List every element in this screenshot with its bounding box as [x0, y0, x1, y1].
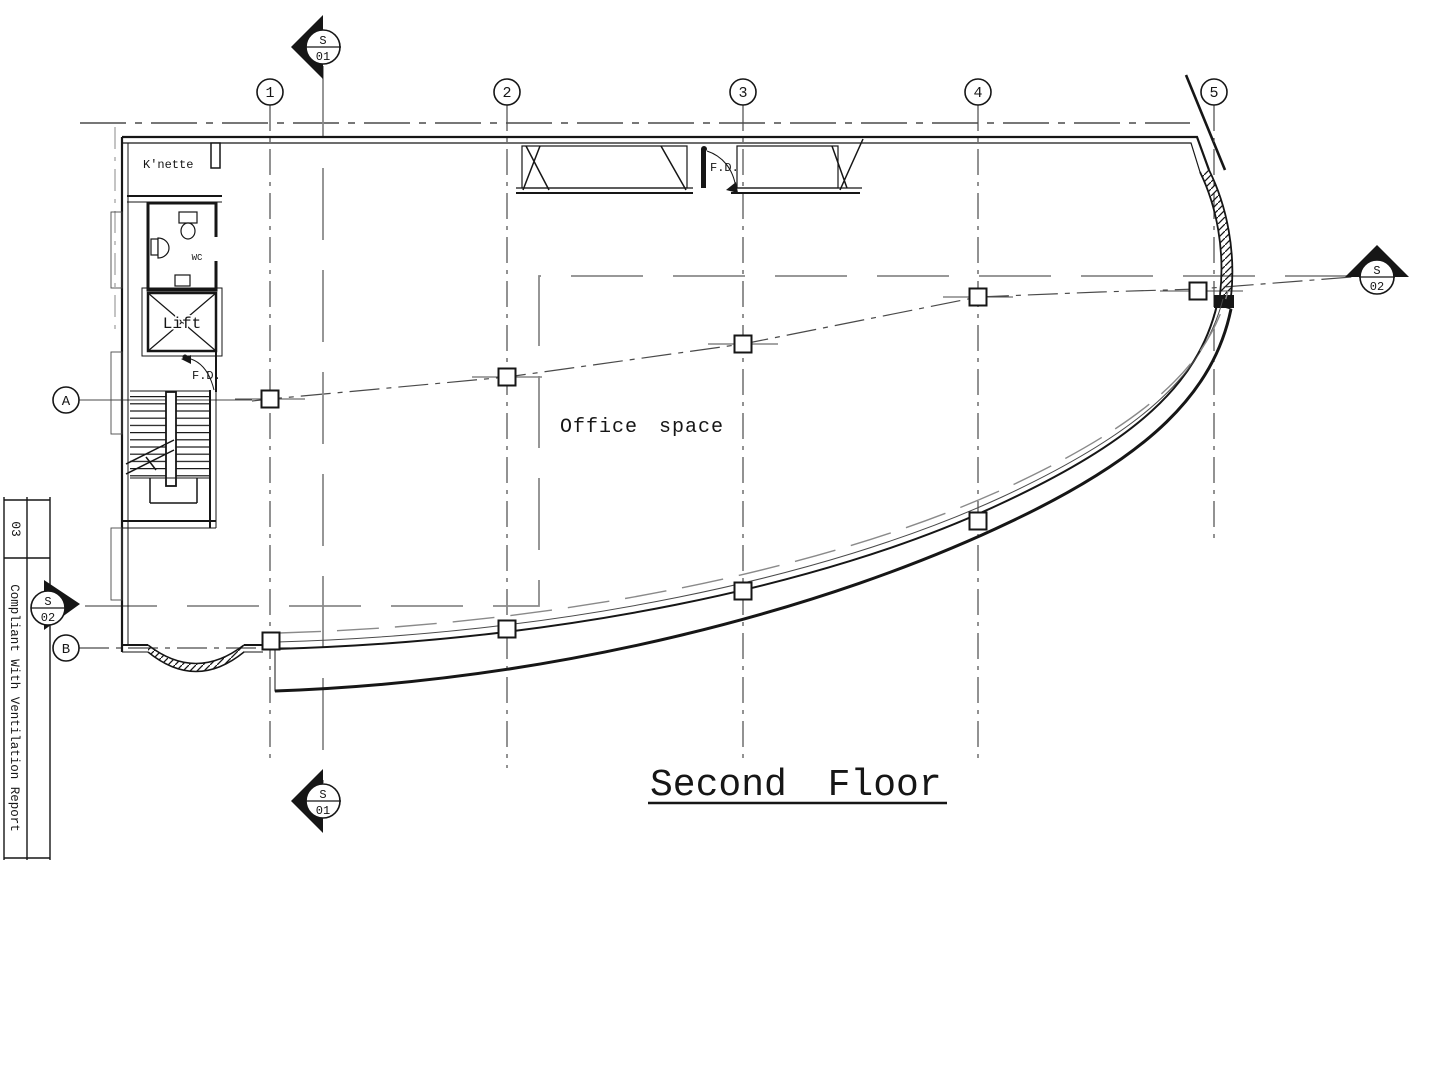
- svg-text:01: 01: [316, 50, 330, 64]
- office-space-label: Office space: [560, 416, 724, 439]
- grid-bubble-a: A: [53, 387, 79, 413]
- annotations: Office space Second Floor: [560, 416, 947, 807]
- wc-fixtures: [151, 212, 197, 286]
- section-marker-s01-top: S 01: [291, 15, 341, 79]
- drawing-title: Second Floor: [648, 764, 947, 807]
- section-line-s02: [68, 276, 1357, 606]
- svg-text:S: S: [319, 788, 326, 802]
- grid-bubble-3: 3: [730, 79, 756, 105]
- lobby-fire-door: F.D.: [181, 351, 221, 392]
- revision-number: 03: [8, 521, 23, 537]
- grid-bubble-4: 4: [965, 79, 991, 105]
- section-marker-s02-left: S 02: [31, 580, 80, 630]
- svg-text:02: 02: [1370, 280, 1384, 294]
- svg-text:B: B: [62, 642, 70, 658]
- svg-text:A: A: [62, 394, 71, 410]
- grid-bubble-b: B: [53, 635, 79, 661]
- kitchenette-label: K'nette: [143, 158, 193, 172]
- building-shell: [111, 137, 1234, 691]
- svg-text:01: 01: [316, 804, 330, 818]
- boundary-line: [80, 75, 1225, 330]
- svg-text:1: 1: [265, 85, 274, 102]
- floor-plan-sheet: 03 Compliant With Ventilation Report: [0, 0, 1435, 1080]
- fire-door-label: F.D.: [710, 161, 739, 175]
- revision-note: Compliant With Ventilation Report: [7, 584, 21, 832]
- svg-text:3: 3: [738, 85, 747, 102]
- svg-text:02: 02: [41, 611, 55, 625]
- revision-strip: 03 Compliant With Ventilation Report: [4, 497, 50, 860]
- drawing-title-text: Second Floor: [650, 764, 942, 807]
- svg-text:5: 5: [1209, 85, 1218, 102]
- grid-bubble-2: 2: [494, 79, 520, 105]
- left-windows: [111, 212, 122, 600]
- svg-text:S: S: [319, 34, 326, 48]
- svg-text:S: S: [1373, 264, 1380, 278]
- grid-bubble-1: 1: [257, 79, 283, 105]
- svg-text:4: 4: [973, 85, 982, 102]
- wc-label: WC: [192, 253, 203, 263]
- section-marker-s01-bottom: S 01: [291, 769, 341, 833]
- stair-top: F.D.: [516, 139, 863, 193]
- column-markers: [262, 283, 1207, 408]
- lift: Lift: [142, 288, 222, 356]
- south-west-wall: [122, 645, 263, 672]
- second-floor-plan-drawing: 03 Compliant With Ventilation Report: [0, 0, 1435, 1080]
- section-marker-s02-right: S 02: [1345, 245, 1409, 294]
- wc-room: WC: [148, 203, 220, 290]
- lift-label: Lift: [163, 315, 201, 333]
- svg-text:2: 2: [502, 85, 511, 102]
- grid-bubble-5: 5: [1201, 79, 1227, 105]
- svg-text:S: S: [44, 595, 51, 609]
- stair-fire-door: F.D.: [701, 146, 739, 193]
- stair-left: [122, 390, 216, 528]
- kitchenette: K'nette: [127, 143, 222, 202]
- fire-door-label: F.D.: [192, 369, 221, 383]
